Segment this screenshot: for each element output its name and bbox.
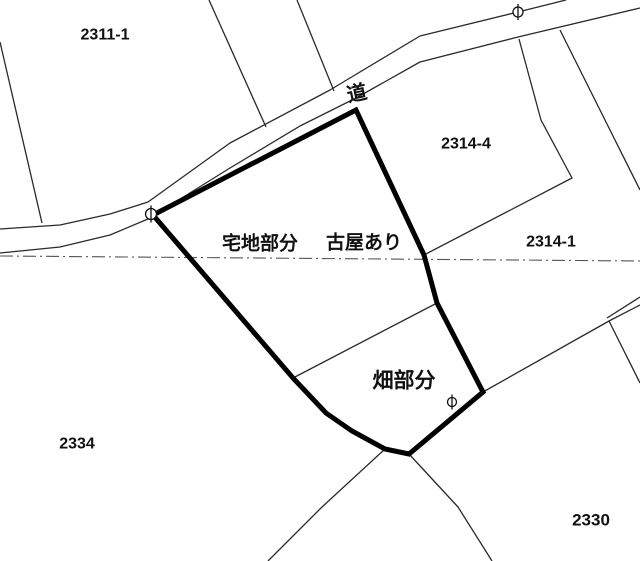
boundary-2311-1-east — [209, 0, 266, 127]
boundary-south-west — [268, 449, 385, 561]
division-takuchi-hatake — [293, 303, 437, 378]
map-canvas: 2311-1道2314-4宅地部分古屋あり2314-1畑部分23342330 — [0, 0, 640, 561]
boundary-northeast — [560, 30, 640, 190]
survey-marker-field — [448, 395, 457, 410]
boundary-2311-1-west — [0, 42, 42, 223]
label-parcel-2330: 2330 — [572, 511, 610, 530]
label-takuchi-bubun: 宅地部分 — [222, 232, 298, 255]
subject-parcel-outline — [153, 110, 483, 454]
survey-marker-road — [513, 4, 523, 20]
boundary-southeast-upper — [483, 305, 640, 392]
label-parcel-2311-1: 2311-1 — [81, 27, 130, 44]
label-furuya-ari: 古屋あり — [326, 231, 402, 254]
cadastral-map: 2311-1道2314-4宅地部分古屋あり2314-1畑部分23342330 — [0, 0, 640, 561]
label-parcel-2314-1: 2314-1 — [526, 234, 576, 251]
boundary-2314-1-south — [0, 256, 640, 261]
label-parcel-2314-4: 2314-4 — [441, 136, 491, 153]
boundary-north-mid — [297, 0, 334, 91]
label-road: 道 — [345, 79, 370, 107]
boundary-southeast-lower — [609, 321, 640, 383]
label-hatake-bubun: 畑部分 — [373, 369, 436, 393]
boundary-south-east — [409, 454, 492, 561]
label-parcel-2334: 2334 — [59, 436, 95, 453]
